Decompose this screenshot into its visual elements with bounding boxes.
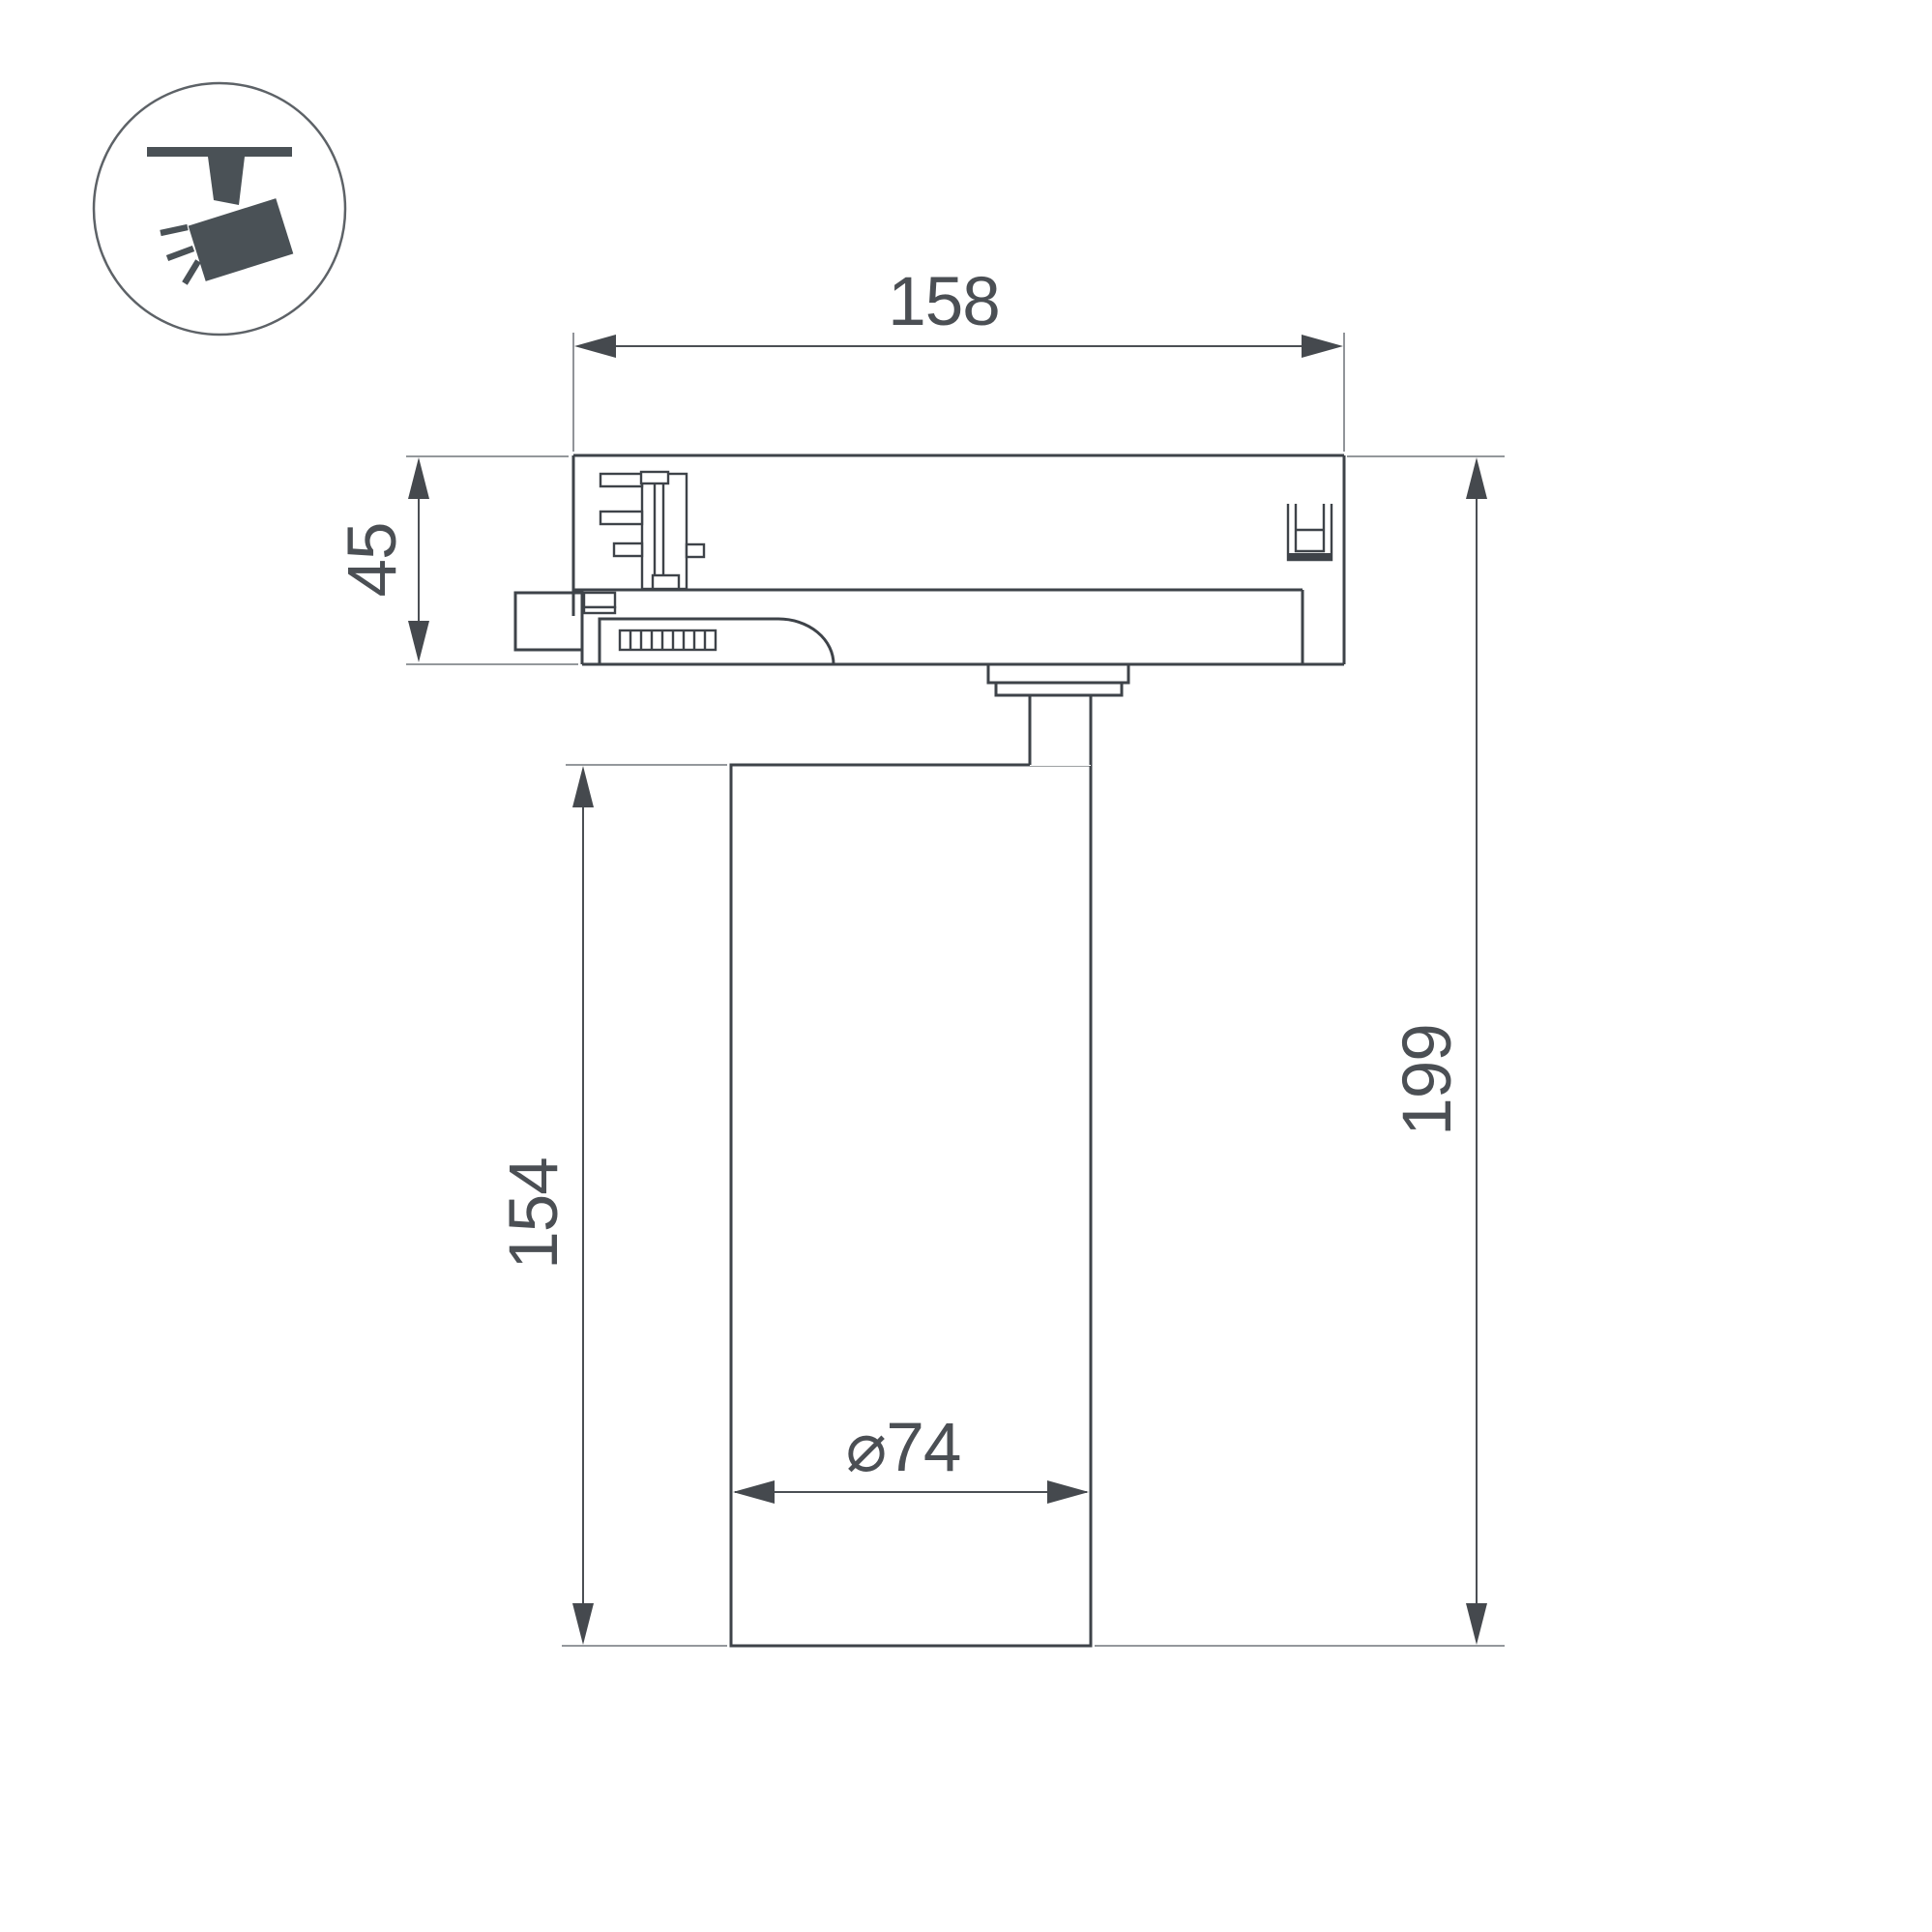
arrowhead-up: [572, 766, 594, 807]
arrowhead-down: [408, 621, 429, 662]
track-spotlight-icon: [94, 83, 345, 335]
contact-prong-right: [687, 544, 704, 557]
arrowhead-right: [1302, 335, 1343, 358]
icon-lamp-head: [189, 198, 294, 281]
adapter-width-label: 158: [888, 264, 999, 340]
cylinder-body: [731, 765, 1091, 1646]
latch-tongue: [584, 593, 615, 607]
arrowhead-up: [408, 457, 429, 499]
icon-stem: [208, 157, 245, 205]
icon-circle: [94, 83, 345, 335]
mount-step-2: [996, 683, 1122, 695]
arrowhead-down: [572, 1603, 594, 1645]
body-diameter-label: ⌀74: [846, 1410, 961, 1486]
dimension-adapter-width: 158: [573, 264, 1344, 452]
contact-block: [600, 472, 704, 589]
icon-track-bar: [147, 147, 292, 157]
arrowhead-down: [1466, 1603, 1487, 1645]
drawing-svg: 158 45 154 199 ⌀74: [0, 0, 1932, 1932]
contact-foot: [653, 575, 679, 589]
arrowhead-up: [1466, 457, 1487, 499]
mount-step-1: [988, 664, 1128, 683]
total-height-label: 199: [1390, 1024, 1466, 1135]
track-adapter: [515, 455, 1344, 664]
adapter-height-label: 45: [335, 523, 411, 598]
contact-prong-middle: [600, 512, 642, 524]
dimension-total-height: 199: [1095, 456, 1505, 1646]
locking-lever: [600, 619, 834, 664]
lever-grip: [620, 630, 716, 650]
dimension-body-height: 154: [496, 765, 727, 1646]
right-clip: [1288, 504, 1332, 561]
contact-screw-cap: [641, 472, 668, 483]
contact-prong-top: [600, 474, 642, 486]
body-height-label: 154: [496, 1157, 572, 1269]
arrowhead-left: [574, 335, 616, 358]
technical-drawing-page: 158 45 154 199 ⌀74: [0, 0, 1932, 1932]
latch-ledge: [584, 607, 615, 613]
lamp-body: [731, 664, 1128, 1646]
contact-prong-bottom: [614, 543, 642, 556]
